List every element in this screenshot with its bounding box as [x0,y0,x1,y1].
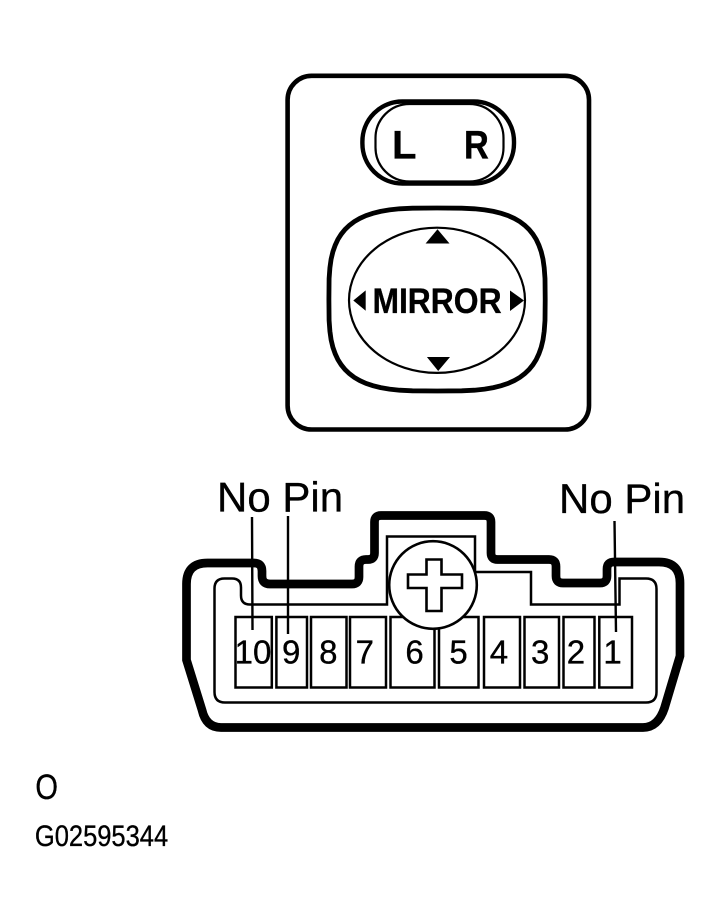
svg-text:5: 5 [449,634,467,671]
svg-text:G02595344: G02595344 [35,819,168,852]
svg-text:9: 9 [282,634,300,671]
svg-text:3: 3 [531,634,549,671]
svg-text:1: 1 [603,634,621,671]
svg-text:R: R [464,122,489,167]
svg-text:4: 4 [490,634,508,671]
svg-text:No Pin: No Pin [559,475,685,522]
svg-text:No Pin: No Pin [217,474,343,521]
svg-text:6: 6 [405,634,423,671]
svg-text:10: 10 [235,634,272,671]
svg-text:O: O [35,767,58,806]
svg-text:MIRROR: MIRROR [372,283,501,322]
svg-text:2: 2 [567,634,585,671]
svg-text:8: 8 [319,634,337,671]
svg-text:L: L [392,124,416,168]
svg-text:7: 7 [356,634,374,671]
